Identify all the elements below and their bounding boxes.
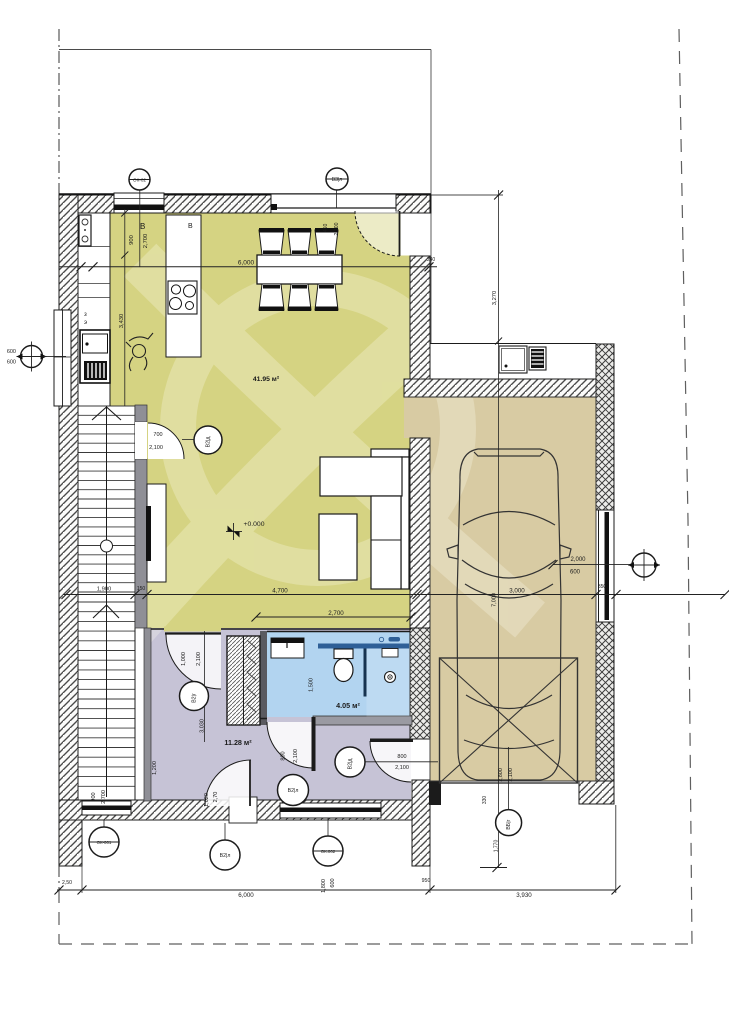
svg-text:150: 150: [137, 586, 146, 592]
svg-text:ОК-02: ОК-02: [133, 178, 146, 183]
svg-text:600: 600: [330, 878, 336, 887]
svg-text:3,000: 3,000: [509, 588, 525, 595]
svg-text:В: В: [140, 222, 145, 231]
svg-text:950: 950: [422, 878, 431, 884]
svg-text:350: 350: [598, 584, 607, 590]
svg-text:з: з: [84, 312, 87, 318]
svg-text:6,000: 6,000: [238, 892, 254, 899]
svg-text:2,100: 2,100: [149, 445, 163, 451]
svg-text:э: э: [84, 320, 87, 326]
svg-text:3,430: 3,430: [119, 314, 125, 329]
svg-text:7,000: 7,000: [492, 593, 498, 607]
svg-text:2,700: 2,700: [101, 790, 107, 804]
svg-text:41.95 м²: 41.95 м²: [253, 376, 280, 383]
svg-text:В2|л: В2|л: [220, 853, 231, 859]
svg-text:1,020: 1,020: [204, 793, 210, 807]
svg-text:3,270: 3,270: [492, 291, 498, 306]
svg-text:3,930: 3,930: [516, 892, 532, 899]
svg-text:900: 900: [91, 792, 97, 801]
svg-text:1,770: 1,770: [494, 840, 500, 853]
svg-text:2,700: 2,700: [143, 234, 149, 249]
svg-text:2,100: 2,100: [293, 749, 299, 763]
svg-text:2,50: 2,50: [62, 880, 72, 886]
svg-text:2,700: 2,700: [328, 610, 344, 617]
svg-text:4,700: 4,700: [272, 588, 288, 595]
svg-text:900: 900: [129, 235, 135, 245]
svg-text:800: 800: [281, 751, 287, 760]
svg-text:600: 600: [7, 349, 16, 355]
svg-text:6,000: 6,000: [238, 260, 255, 267]
svg-text:ВБ|г: ВБ|г: [506, 819, 512, 829]
svg-text:2,100: 2,100: [508, 768, 514, 782]
svg-text:В2|д: В2|д: [348, 759, 354, 770]
svg-text:2,100: 2,100: [334, 222, 340, 235]
svg-text:В2|г: В2|г: [192, 693, 198, 703]
svg-text:600: 600: [570, 570, 581, 576]
svg-text:ВЗ|л: ВЗ|л: [332, 177, 342, 183]
svg-text:800: 800: [397, 754, 406, 760]
svg-text:2,800: 2,800: [498, 768, 504, 782]
svg-text:1,200: 1,200: [152, 761, 158, 775]
svg-text:600: 600: [7, 360, 16, 366]
svg-text:+0.000: +0.000: [244, 521, 265, 528]
svg-text:2,70: 2,70: [213, 792, 219, 803]
svg-text:700: 700: [153, 432, 162, 438]
svg-text:240: 240: [427, 257, 436, 263]
svg-text:В2|д: В2|д: [206, 437, 212, 448]
svg-text:2,100: 2,100: [196, 652, 202, 666]
svg-text:ОК.002: ОК.002: [321, 849, 336, 854]
svg-text:В: В: [188, 223, 193, 230]
svg-text:460: 460: [323, 224, 329, 233]
svg-text:В2|л: В2|л: [288, 788, 299, 794]
svg-text:2,000: 2,000: [570, 557, 586, 563]
svg-text:ОК-001: ОК-001: [97, 840, 112, 845]
svg-text:330: 330: [482, 796, 488, 805]
svg-text:1,000: 1,000: [181, 652, 187, 666]
svg-text:3,030: 3,030: [200, 719, 206, 733]
svg-text:4.05 м²: 4.05 м²: [336, 701, 360, 710]
svg-text:11.28 м²: 11.28 м²: [224, 738, 252, 747]
svg-text:1,800: 1,800: [321, 879, 327, 893]
svg-text:2,100: 2,100: [395, 765, 409, 771]
svg-text:1,500: 1,500: [309, 678, 315, 692]
svg-text:1,900: 1,900: [97, 587, 112, 593]
